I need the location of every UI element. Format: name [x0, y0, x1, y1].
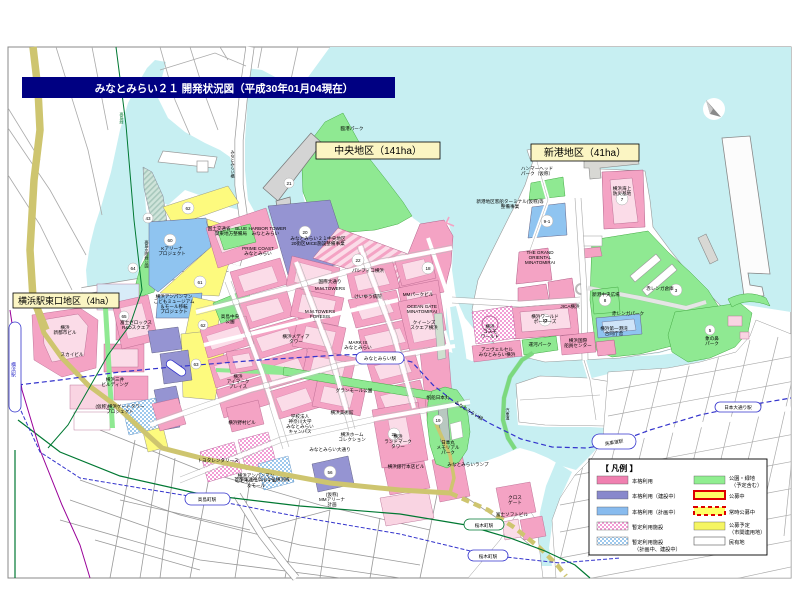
svg-text:ワールド: ワールド	[481, 334, 499, 339]
svg-text:みなとみらい大通り: みなとみらい大通り	[309, 446, 350, 453]
svg-text:タワー: タワー	[391, 443, 405, 450]
svg-text:船員センター: 船員センター	[564, 342, 592, 349]
svg-text:本格利用: 本格利用	[632, 477, 653, 485]
svg-text:FORESIS: FORESIS	[310, 314, 330, 319]
svg-text:62: 62	[185, 206, 191, 211]
svg-text:横浜銀行本店ビル: 横浜銀行本店ビル	[388, 463, 425, 470]
svg-text:高島線: 高島線	[120, 111, 125, 124]
svg-text:5: 5	[709, 328, 712, 333]
svg-text:計画: 計画	[327, 501, 337, 508]
svg-text:新港地区（41ha）: 新港地区（41ha）	[544, 146, 626, 159]
svg-text:関東地方整備局 みなとみらい: 関東地方整備局 みなとみらい	[215, 230, 280, 237]
svg-text:JICA横浜: JICA横浜	[560, 303, 580, 310]
svg-text:高島水際線公園: 高島水際線公園	[145, 239, 150, 269]
svg-text:赤レンガパーク: 赤レンガパーク	[612, 310, 644, 317]
svg-text:中央地区（141ha）: 中央地区（141ha）	[334, 144, 422, 157]
svg-text:暫定利用施設: 暫定利用施設	[632, 523, 663, 531]
svg-text:43: 43	[145, 216, 151, 221]
svg-text:7: 7	[621, 197, 624, 202]
svg-text:暫定利用施設: 暫定利用施設	[632, 538, 663, 546]
svg-text:横浜駅: 横浜駅	[10, 361, 16, 378]
svg-text:合同庁舎: 合同庁舎	[605, 330, 624, 337]
svg-text:公園・緑地: 公園・緑地	[729, 474, 755, 482]
svg-text:（計画中、建設中）: （計画中、建設中）	[634, 545, 681, 553]
svg-text:日本大通り駅: 日本大通り駅	[724, 404, 752, 411]
svg-text:63: 63	[193, 362, 199, 367]
svg-text:みなとみらい橋: みなとみらい橋	[231, 149, 236, 179]
svg-text:8: 8	[604, 298, 607, 303]
svg-text:桜木町駅: 桜木町駅	[479, 553, 498, 560]
svg-text:みなとみらいランプ: みなとみらいランプ	[447, 461, 489, 468]
svg-text:常時公募中: 常時公募中	[729, 508, 755, 516]
svg-text:ゲート: ゲート	[508, 499, 522, 506]
svg-text:62: 62	[200, 323, 206, 328]
svg-text:タワー: タワー	[289, 338, 303, 345]
svg-text:新港中央広場: 新港中央広場	[592, 291, 620, 298]
svg-text:（予定含む）: （予定含む）	[731, 481, 762, 489]
svg-text:65: 65	[121, 314, 127, 319]
svg-text:61: 61	[197, 280, 203, 285]
svg-text:高島町駅: 高島町駅	[198, 496, 217, 503]
svg-text:富士ソフトビル: 富士ソフトビル	[496, 511, 529, 518]
svg-text:整備事業: 整備事業	[501, 203, 520, 210]
svg-text:みなとみらい横浜: みなとみらい横浜	[479, 351, 516, 358]
svg-text:60: 60	[167, 238, 173, 243]
svg-text:56: 56	[327, 470, 333, 475]
svg-text:新都市ビル: 新都市ビル	[54, 329, 77, 336]
svg-text:横浜美術館: 横浜美術館	[331, 409, 354, 416]
svg-text:帆船日本丸: 帆船日本丸	[427, 394, 450, 401]
svg-text:赤レンガ倉庫: 赤レンガ倉庫	[646, 285, 674, 292]
svg-text:キャンパス: キャンパス	[289, 429, 312, 434]
svg-text:汽車道: 汽車道	[506, 407, 511, 421]
svg-text:桜木町駅: 桜木町駅	[475, 522, 494, 529]
svg-text:みなとみらい駅: みなとみらい駅	[364, 355, 397, 362]
svg-text:パーク（仮称）: パーク（仮称）	[521, 170, 553, 177]
svg-text:国際大通り: 国際大通り	[319, 278, 342, 285]
svg-text:19: 19	[435, 418, 441, 423]
svg-text:トヨタレンタリース: トヨタレンタリース	[197, 457, 239, 464]
svg-text:横浜駅東口地区（4ha）: 横浜駅東口地区（4ha）	[18, 295, 114, 306]
svg-text:MMパークビル: MMパークビル	[403, 291, 434, 298]
svg-text:ポーターズ: ポーターズ	[534, 318, 557, 325]
svg-text:みなとみらい: みなとみらい	[244, 250, 272, 257]
svg-text:スクエア横浜: スクエア横浜	[410, 324, 438, 331]
svg-text:臨港パーク: 臨港パーク	[341, 125, 364, 132]
svg-text:公募中: 公募中	[729, 492, 745, 500]
svg-text:20: 20	[302, 230, 308, 235]
svg-text:グランモール公園: グランモール公園	[336, 387, 373, 394]
svg-text:横浜野村ビル: 横浜野村ビル	[228, 419, 256, 426]
svg-text:22: 22	[355, 258, 361, 263]
svg-text:防災基地: 防災基地	[613, 190, 632, 197]
svg-text:20街区MICE施設整備事業: 20街区MICE施設整備事業	[291, 240, 345, 247]
svg-text:MINATOMIRAI: MINATOMIRAI	[525, 260, 555, 265]
svg-text:9-1: 9-1	[544, 219, 551, 224]
svg-text:【 凡例 】: 【 凡例 】	[601, 463, 637, 473]
svg-text:運河パーク: 運河パーク	[529, 341, 552, 348]
svg-text:本格利用（建設中）: 本格利用（建設中）	[632, 492, 679, 500]
svg-text:18: 18	[425, 266, 431, 271]
svg-text:64: 64	[130, 266, 136, 271]
svg-text:みなとみらい: みなとみらい	[344, 344, 372, 351]
svg-text:M.M.TOWERS: M.M.TOWERS	[315, 286, 345, 291]
svg-text:みなとみらい２１ 開発状況図（平成30年01月04現在）: みなとみらい２１ 開発状況図（平成30年01月04現在）	[95, 82, 353, 95]
svg-text:21: 21	[286, 181, 292, 186]
svg-text:民有地: 民有地	[729, 538, 745, 546]
svg-text:公募予定: 公募予定	[729, 521, 750, 529]
svg-text:パシフィコ横浜: パシフィコ横浜	[352, 267, 384, 274]
svg-text:ビルディング: ビルディング	[101, 381, 129, 388]
svg-text:スカイビル: スカイビル	[61, 351, 84, 358]
svg-text:けいゆう病院: けいゆう病院	[354, 293, 382, 300]
svg-text:本格利用（計画中）: 本格利用（計画中）	[632, 508, 679, 516]
svg-text:MINATOMIRAI: MINATOMIRAI	[407, 309, 437, 314]
svg-text:（市関連用地）: （市関連用地）	[729, 528, 765, 536]
svg-text:3: 3	[675, 288, 678, 293]
